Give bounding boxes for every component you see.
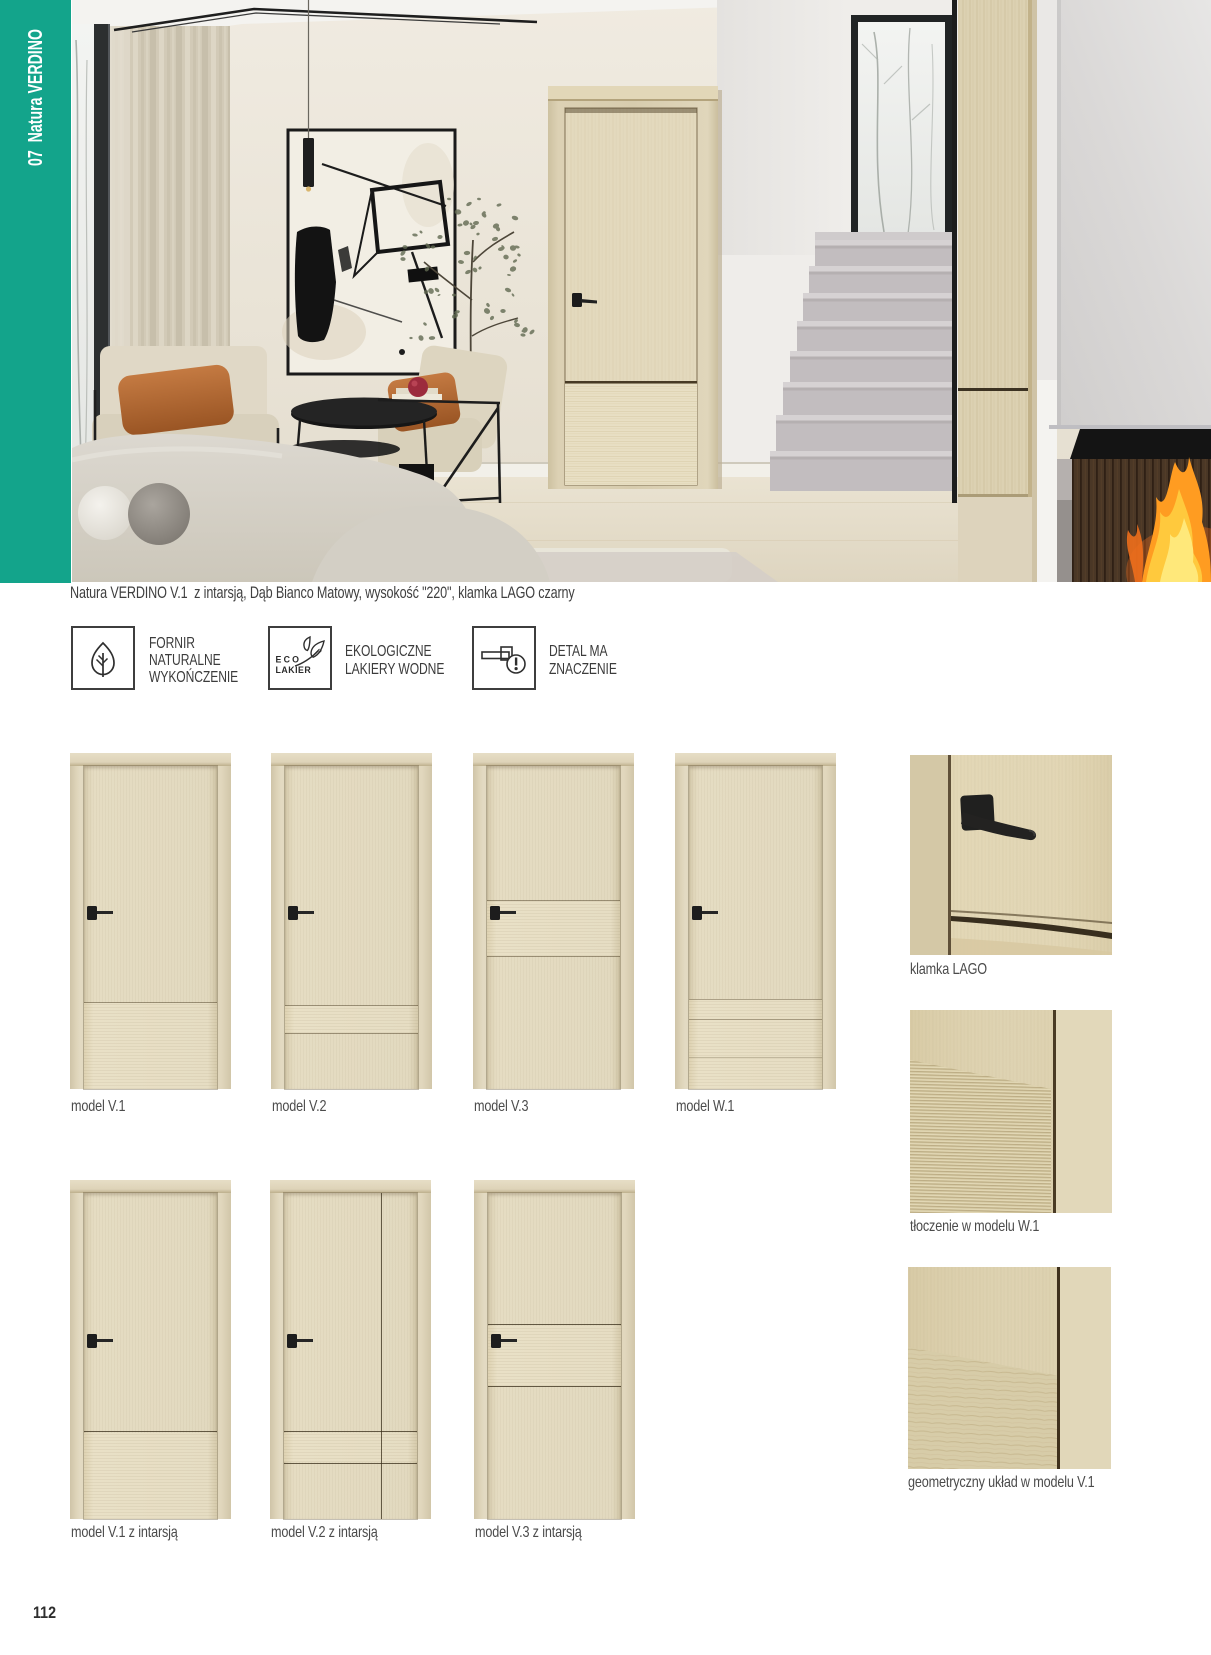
svg-text:LAKIER: LAKIER [276,665,312,675]
svg-text:ECO: ECO [276,655,302,665]
svg-text:07 Natura VERDINO: 07 Natura VERDINO [25,29,47,166]
